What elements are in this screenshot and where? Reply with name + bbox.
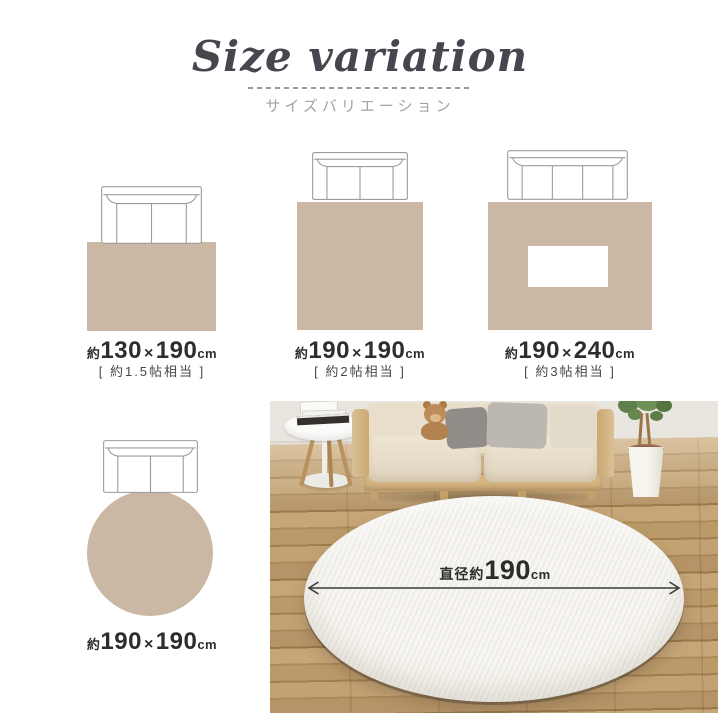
tatami-note-3: [ 約3帖相当 ] xyxy=(524,361,616,380)
pillow-lightgray xyxy=(486,402,548,449)
times-sign: × xyxy=(144,345,154,362)
times-sign: × xyxy=(562,345,572,362)
times-sign: × xyxy=(352,345,362,362)
approx-mark: 約 xyxy=(295,346,309,361)
teddy-bear xyxy=(418,401,454,443)
size-width: 190 xyxy=(100,628,142,655)
diameter-label: 直径約190cm xyxy=(439,555,550,586)
table-cutout xyxy=(528,246,608,287)
size-unit: cm xyxy=(197,346,217,361)
rug-shape-circle xyxy=(87,490,213,616)
pillow-cream xyxy=(550,406,596,448)
size-height: 240 xyxy=(574,337,616,364)
room-photo: 直径約190cm xyxy=(270,401,718,713)
title-divider xyxy=(248,87,472,89)
page-subtitle: サイズバリエーション xyxy=(0,95,720,116)
tatami-note-1: [ 約1.5帖相当 ] xyxy=(99,361,206,380)
size-height: 190 xyxy=(156,628,198,655)
approx-mark: 約 xyxy=(505,346,519,361)
size-label-round-190: 約190×190cm xyxy=(87,628,217,656)
sofa-top-view-icon xyxy=(312,152,408,200)
sofa-top-view-icon xyxy=(101,186,202,244)
size-unit: cm xyxy=(405,346,425,361)
diameter-prefix: 直径約 xyxy=(439,566,484,582)
rug-shape-square xyxy=(297,202,423,330)
page-title: Size variation xyxy=(0,32,720,81)
size-unit: cm xyxy=(197,637,217,652)
size-width: 190 xyxy=(308,337,350,364)
size-height: 190 xyxy=(156,337,198,364)
approx-mark: 約 xyxy=(87,637,101,652)
size-variation-page: Size variation サイズバリエーション 約130×190cm [ 約… xyxy=(0,0,720,720)
sofa-top-view-icon xyxy=(507,150,628,200)
diameter-unit: cm xyxy=(531,567,551,582)
size-width: 190 xyxy=(518,337,560,364)
times-sign: × xyxy=(144,636,154,653)
size-width: 130 xyxy=(100,337,142,364)
diameter-value: 190 xyxy=(484,555,531,585)
tatami-note-2: [ 約2帖相当 ] xyxy=(314,361,406,380)
size-height: 190 xyxy=(364,337,406,364)
approx-mark: 約 xyxy=(87,346,101,361)
rug-shape-rectangle xyxy=(87,242,216,331)
sofa-top-view-icon xyxy=(103,440,198,493)
size-unit: cm xyxy=(615,346,635,361)
